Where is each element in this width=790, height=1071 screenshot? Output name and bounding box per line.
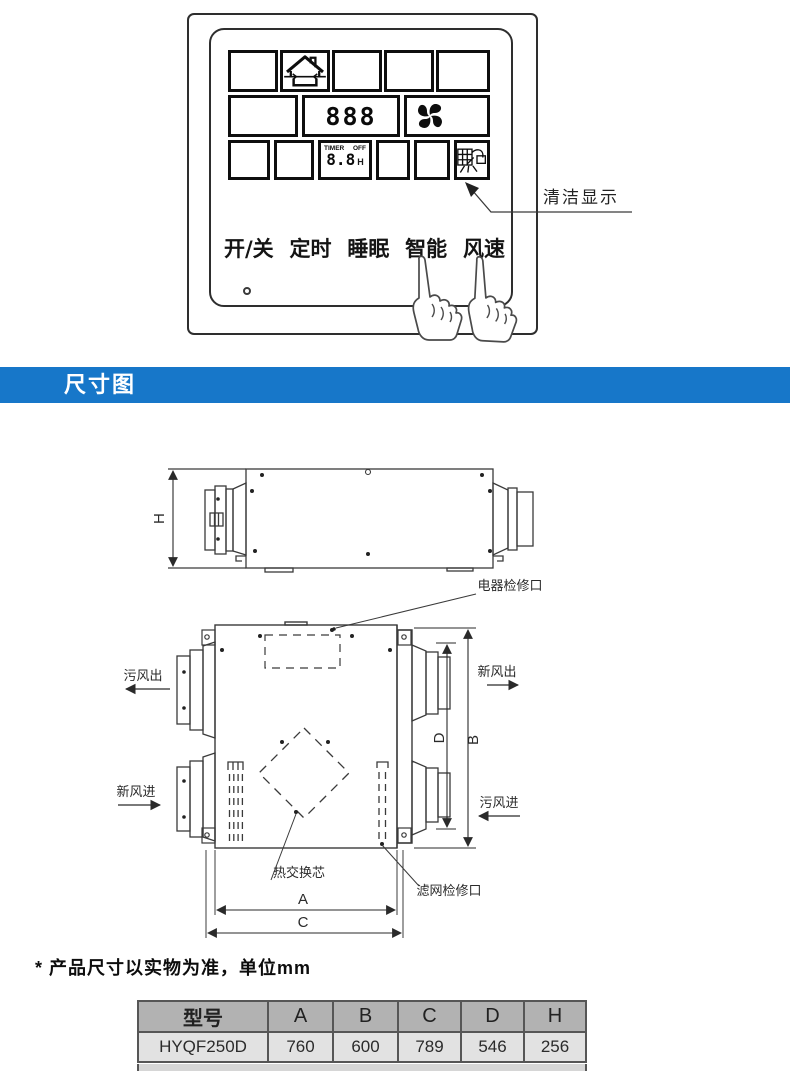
cell-d: 546 <box>461 1032 524 1062</box>
filter-access-label: 滤网检修口 <box>416 883 481 898</box>
lcd-cell-digits: 888 <box>302 95 400 137</box>
top-view-body <box>215 622 412 848</box>
fan-icon <box>415 101 445 131</box>
clean-indicator-icon <box>457 145 487 175</box>
right-filter <box>377 762 388 844</box>
header-h: H <box>524 1001 586 1032</box>
electric-access-dot <box>332 627 336 631</box>
side-view-screws <box>216 473 492 556</box>
header-c: C <box>398 1001 461 1032</box>
lcd-cell-fan <box>404 95 490 137</box>
dim-c-label: C <box>298 914 309 931</box>
header-d: D <box>461 1001 524 1032</box>
button-fanspeed: 风速 <box>463 233 505 263</box>
cell-h: 256 <box>524 1032 586 1062</box>
button-timer: 定时 <box>290 233 332 263</box>
dimension-note: * 产品尺寸以实物为准，单位mm <box>35 954 311 980</box>
led-indicator <box>243 287 251 295</box>
side-view-vent-hole <box>366 470 371 475</box>
header-b: B <box>333 1001 398 1032</box>
size-table-data-row: HYQF250D 760 600 789 546 256 <box>138 1032 586 1062</box>
electric-access-opening <box>265 635 340 668</box>
side-view-drawing <box>168 469 533 572</box>
timer-unit: H <box>357 158 364 167</box>
button-sleep: 睡眠 <box>347 233 389 263</box>
timer-value: 8.8 H <box>324 152 366 167</box>
lcd-cell-timer: TIMER OFF 8.8 H <box>318 140 372 180</box>
button-power: 开/关 <box>224 233 274 263</box>
header-model: 型号 <box>138 1001 268 1032</box>
dirty-air-out-label: 污风出 <box>123 668 162 683</box>
fresh-air-in-label: 新风进 <box>116 784 155 799</box>
house-ventilation-icon <box>283 53 327 89</box>
dim-h-label: H <box>151 513 168 524</box>
lcd-cell-blank <box>228 50 278 92</box>
lcd-cell-blank <box>414 140 450 180</box>
lcd-cell-blank <box>228 95 298 137</box>
section-banner: 尺寸图 <box>0 367 790 403</box>
lcd-cell-blank <box>274 140 314 180</box>
dimension-diagram: H <box>0 440 790 960</box>
size-table-header-row: 型号 A B C D H <box>138 1001 586 1032</box>
section-title: 尺寸图 <box>64 367 136 403</box>
cell-b: 600 <box>333 1032 398 1062</box>
size-table-next-row-cutoff <box>137 1064 587 1071</box>
lcd-cell-blank <box>436 50 490 92</box>
lcd-cell-blank <box>384 50 434 92</box>
left-filter <box>228 762 243 844</box>
header-a: A <box>268 1001 333 1032</box>
lcd-cell-blank <box>376 140 410 180</box>
cell-model: HYQF250D <box>138 1032 268 1062</box>
lcd-display: 888 TIMER OFF 8.8 H <box>228 50 490 180</box>
fresh-air-out-label: 新风出 <box>477 664 516 679</box>
dim-a-label: A <box>298 891 308 908</box>
heat-core-label: 热交换芯 <box>273 865 325 880</box>
main-digits: 888 <box>325 102 376 131</box>
timer-digits: 8.8 <box>326 152 355 167</box>
dim-d-label: D <box>431 732 448 743</box>
lcd-cell-clean <box>454 140 490 180</box>
cell-c: 789 <box>398 1032 461 1062</box>
electric-access-leader <box>336 594 476 628</box>
clean-display-callout: 清洁显示 <box>543 183 619 208</box>
heat-core-diamond <box>259 728 349 818</box>
lcd-cell-blank <box>228 140 270 180</box>
remote-buttons-row: 开/关 定时 睡眠 智能 风速 <box>224 233 505 263</box>
cell-a: 760 <box>268 1032 333 1062</box>
size-table: 型号 A B C D H HYQF250D 760 600 789 546 25… <box>137 1000 587 1063</box>
lcd-cell-blank <box>332 50 382 92</box>
dirty-air-in-label: 污风进 <box>479 795 518 810</box>
lcd-cell-house <box>280 50 330 92</box>
product-manual-page: { "remote": { "display": { "digits_main"… <box>0 0 790 1071</box>
electric-access-label: 电器检修口 <box>477 578 542 593</box>
button-smart: 智能 <box>405 233 447 263</box>
filter-access-leader <box>382 845 419 886</box>
dim-b-label: B <box>465 735 482 745</box>
